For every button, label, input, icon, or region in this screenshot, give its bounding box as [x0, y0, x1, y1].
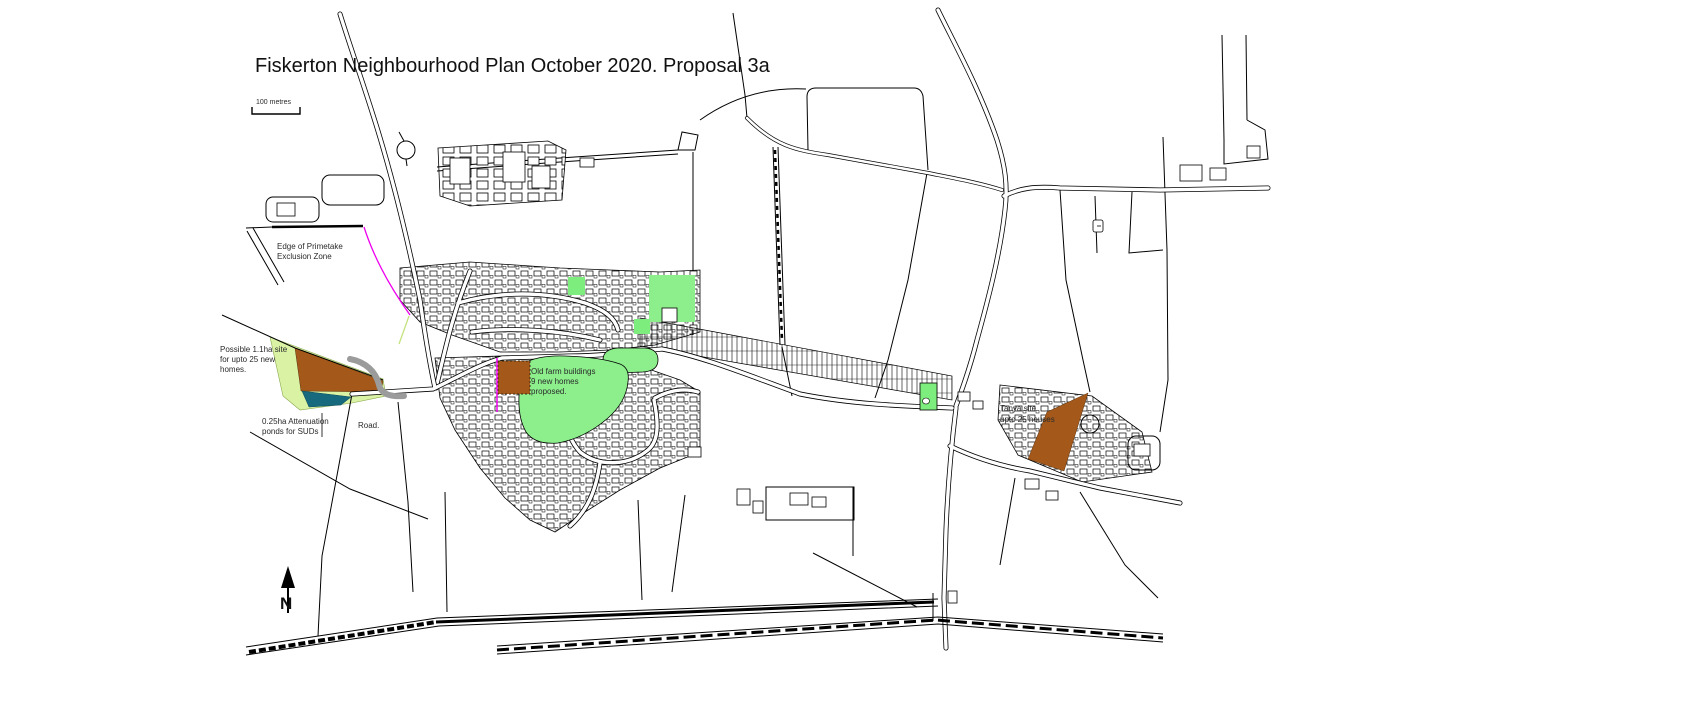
map-graphic: proposed.: [531, 387, 567, 396]
level-crossing-structure: [948, 591, 957, 603]
building-outline: [737, 489, 750, 505]
map-graphic: 0.25ha Attenuation: [262, 417, 329, 426]
building-outline: [688, 447, 701, 457]
building-outline: [450, 158, 470, 184]
building-outline: [812, 497, 826, 507]
map-line: [272, 226, 363, 227]
building-outline: [1046, 491, 1058, 500]
map-canvas: Fiskerton Neighbourhood Plan October 202…: [0, 0, 1684, 725]
map-graphic: homes.: [220, 365, 246, 374]
building-outline: [1134, 444, 1150, 456]
building-outline: [923, 398, 930, 404]
green-patch-small-nw: [568, 277, 585, 295]
building-outline: [1210, 168, 1226, 180]
map-graphic: Possible 1.1ha site: [220, 345, 288, 354]
building-outline: [1025, 479, 1039, 489]
building-outline: [958, 392, 970, 401]
map-graphic: Edge of Primetake: [277, 242, 343, 251]
building-outline: [580, 158, 594, 167]
map-graphic: for upto 25 new: [220, 355, 275, 364]
building-outline: [503, 152, 525, 182]
building-outline: [790, 493, 808, 505]
map-graphic: 9 new homes: [531, 377, 579, 386]
building-in-green: [662, 308, 677, 322]
green-patch-east: [920, 383, 937, 410]
map-graphic: ponds for SUDs: [262, 427, 318, 436]
label-road: Road.: [358, 421, 379, 430]
neighbourhood-plan-map: Fiskerton Neighbourhood Plan October 202…: [0, 0, 1684, 725]
map-graphic: Road.: [358, 421, 379, 430]
building-outline: [532, 166, 550, 188]
building-outline: [753, 501, 763, 513]
building-outline: [1180, 165, 1202, 181]
map-graphic: Tanya site: [1000, 404, 1037, 413]
map-graphic: Exclusion Zone: [277, 252, 332, 261]
map-graphic: upto 25 houses: [1000, 415, 1055, 424]
small-structure-symbol: [1093, 220, 1103, 232]
map-title: Fiskerton Neighbourhood Plan October 202…: [255, 55, 771, 77]
scale-bar-label: 100 metres: [256, 99, 292, 106]
building-outline: [973, 401, 983, 409]
building-outline: [277, 203, 295, 216]
map-graphic: Old farm buildings: [531, 367, 595, 376]
building-outline: [920, 383, 937, 410]
north-arrow-label: N: [280, 594, 292, 613]
green-patch-mid: [634, 319, 650, 334]
old-farm-buildings-site: [498, 361, 530, 394]
building-outline: [1247, 146, 1260, 158]
